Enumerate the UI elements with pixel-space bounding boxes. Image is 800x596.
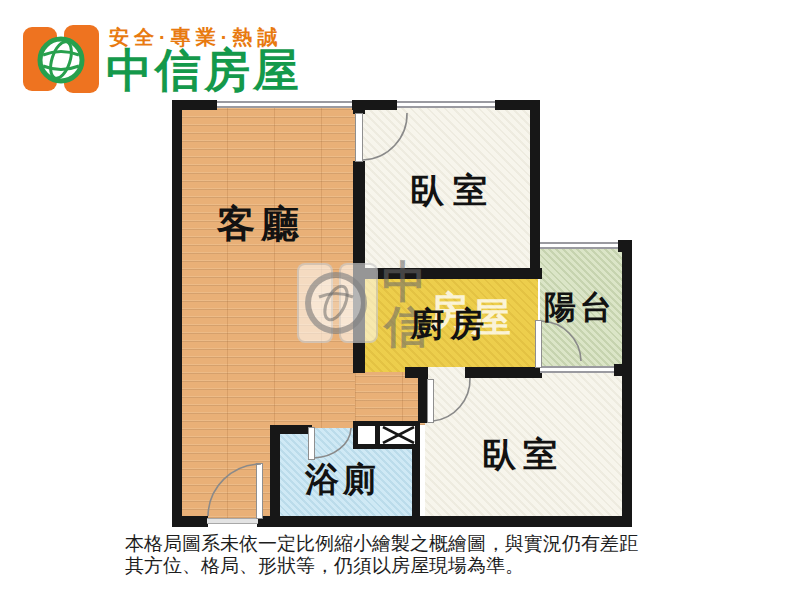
shaft-divider (375, 426, 380, 444)
shaft-box (353, 421, 420, 449)
window-top-living (213, 101, 355, 108)
room-label-bedroom-top: 臥室 (410, 168, 496, 214)
disclaimer-line-1: 本格局圖系未依一定比例縮小繪製之概繪圖，與實況仍有差距 (125, 533, 725, 555)
wall-kitchen-bottom (465, 367, 542, 378)
window-balcony-bottom (540, 366, 616, 373)
screenshot-root: 安全·專業·熱誠 中信房屋 (0, 0, 800, 596)
door-leaf-bedroom-bottom (427, 379, 434, 423)
door-leaf-entrance (256, 463, 263, 519)
room-label-bathroom: 浴廁 (305, 457, 381, 503)
wall-bathroom-left (270, 425, 280, 516)
window-balcony-top (540, 242, 622, 249)
room-label-living: 客廳 (217, 199, 305, 250)
room-label-balcony: 陽台 (544, 286, 616, 330)
wall-corner (618, 240, 632, 252)
floor-plan: 中 信 房 屋 客廳 臥室 廚房 陽台 臥室 浴廁 (0, 0, 800, 596)
wall-right (622, 245, 632, 526)
disclaimer-text: 本格局圖系未依一定比例縮小繪製之概繪圖，與實況仍有差距 其方位、格局、形狀等，仍… (125, 533, 725, 577)
door-leaf-bedroom-top (355, 113, 363, 162)
hallway-floor (355, 370, 425, 425)
wall-bottom (257, 516, 632, 527)
wall-divider (353, 100, 365, 114)
window-top-bedroom (394, 101, 498, 108)
wall-bedroom-right (530, 100, 540, 279)
room-label-kitchen: 廚房 (410, 302, 490, 348)
disclaimer-line-2: 其方位、格局、形狀等，仍須以房屋現場為準。 (125, 555, 725, 577)
entrance-threshold (207, 518, 258, 524)
wall-left (172, 100, 182, 527)
wall-divider (353, 161, 365, 373)
door-leaf-bathroom (308, 427, 315, 460)
wall-bottom (172, 516, 208, 527)
door-leaf-balcony (535, 320, 542, 368)
shaft-x-icon (382, 426, 415, 444)
wall-corner (614, 364, 632, 376)
room-label-bedroom-bottom: 臥室 (482, 432, 564, 478)
wall-bathroom-right (412, 448, 420, 516)
wall-bedroom-kitchen (353, 268, 542, 279)
